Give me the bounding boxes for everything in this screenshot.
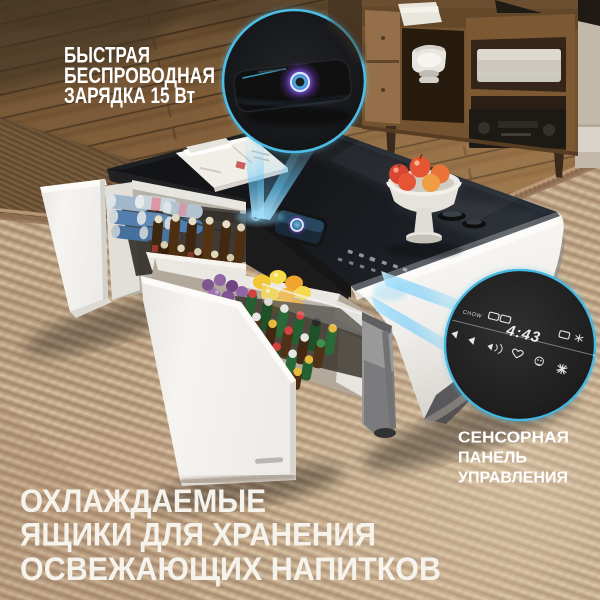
svg-text:УПРАВЛЕНИЯ: УПРАВЛЕНИЯ — [458, 470, 568, 487]
svg-text:ПАНЕЛЬ: ПАНЕЛЬ — [458, 450, 527, 467]
svg-text:СЕНСОРНАЯ: СЕНСОРНАЯ — [458, 430, 569, 447]
svg-text:ЯЩИКИ ДЛЯ ХРАНЕНИЯ: ЯЩИКИ ДЛЯ ХРАНЕНИЯ — [20, 517, 376, 553]
svg-text:ОСВЕЖАЮЩИХ НАПИТКОВ: ОСВЕЖАЮЩИХ НАПИТКОВ — [20, 551, 441, 587]
svg-text:ЗАРЯДКА 15 Вт: ЗАРЯДКА 15 Вт — [64, 83, 195, 108]
svg-text:ОХЛАЖДАЕМЫЕ: ОХЛАЖДАЕМЫЕ — [20, 483, 266, 519]
